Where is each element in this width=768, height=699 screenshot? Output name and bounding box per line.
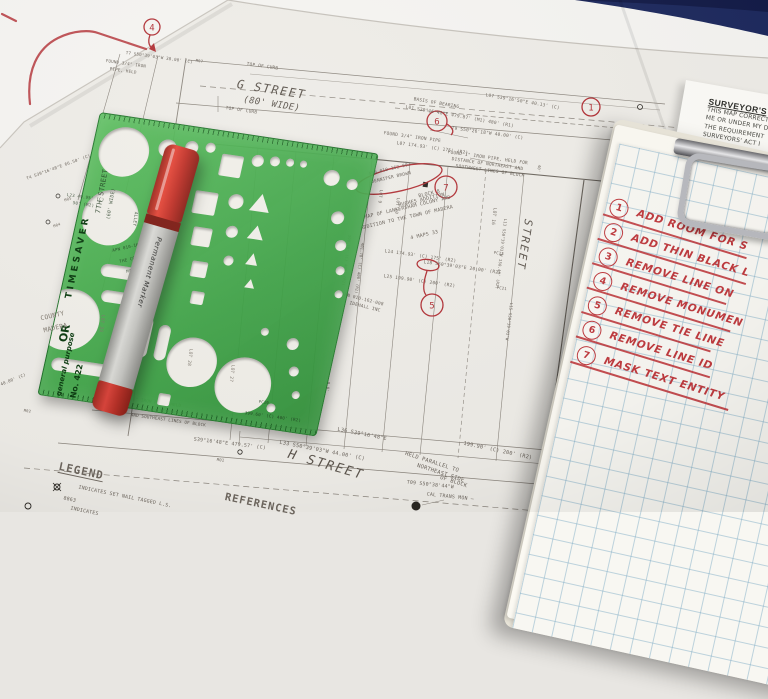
- marker-label: Permanent Marker: [135, 236, 163, 308]
- stencil-hole: [335, 266, 346, 276]
- desk-photo: { "colors": { "desk_blue": "#1e2a5e", "t…: [0, 0, 768, 512]
- stencil-hole: [291, 391, 301, 400]
- stencil-hole: [334, 290, 344, 299]
- stencil-hole: [247, 224, 266, 240]
- callout-5: 5: [429, 302, 434, 312]
- stencil-hole: [249, 192, 273, 213]
- stencil-hole: [334, 239, 347, 251]
- callout-1: 1: [588, 104, 593, 114]
- callout-4: 4: [149, 24, 154, 34]
- stencil-hole: [285, 158, 295, 167]
- stencil-hole: [286, 337, 300, 351]
- stencil-hole: [227, 193, 245, 210]
- item-number-badge: 4: [591, 269, 615, 293]
- stencil-hole: [161, 334, 221, 390]
- stencil-hole: [288, 366, 300, 377]
- stencil-hole: [157, 393, 171, 407]
- item-number-badge: 1: [607, 196, 631, 220]
- item-number-badge: 2: [602, 220, 626, 244]
- stencil-hole: [345, 178, 358, 190]
- stencil-hole: [94, 124, 154, 180]
- stencil-hole: [225, 225, 239, 239]
- stencil-hole: [265, 403, 276, 413]
- stencil-hole: [251, 154, 265, 168]
- stencil-hole: [222, 255, 234, 266]
- stencil-hole: [191, 190, 219, 216]
- stencil-hole: [299, 160, 307, 168]
- stencil-hole: [189, 291, 205, 306]
- stencil-hole: [205, 142, 217, 153]
- stencil-hole: [260, 327, 270, 336]
- item-number-badge: 5: [586, 294, 610, 318]
- callout-7: 7: [443, 184, 448, 194]
- stencil-hole: [218, 154, 245, 179]
- item-number-badge: 6: [580, 318, 604, 342]
- stencil-hole: [244, 278, 256, 288]
- item-number-badge: 3: [596, 245, 620, 269]
- callout-6: 6: [434, 118, 439, 128]
- item-number-badge: 7: [575, 343, 599, 367]
- stencil-holes: [39, 113, 378, 435]
- stencil-hole: [330, 210, 346, 225]
- stencil-hole: [245, 252, 259, 266]
- stencil-hole: [322, 169, 341, 187]
- stencil-hole: [190, 226, 213, 247]
- stencil-hole: [269, 156, 281, 167]
- stencil-hole: [189, 260, 208, 278]
